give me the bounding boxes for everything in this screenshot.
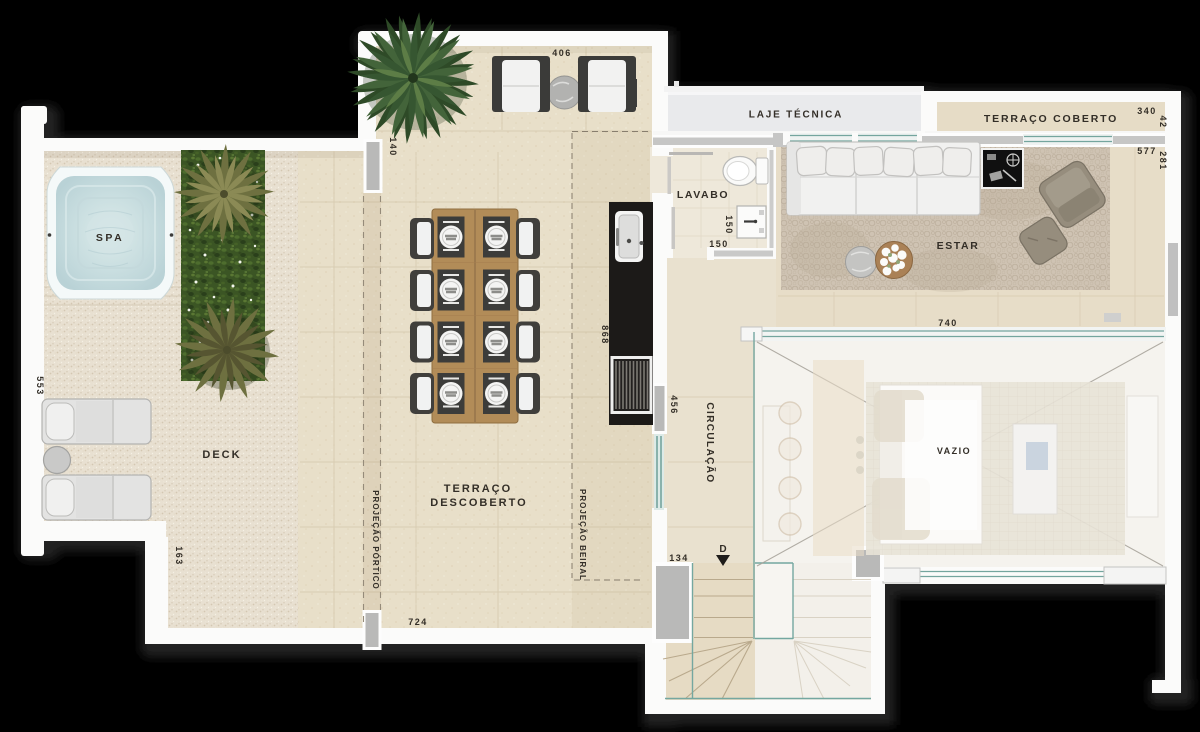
svg-text:LAVABO: LAVABO [677, 189, 729, 201]
svg-text:553: 553 [35, 376, 45, 396]
svg-text:868: 868 [600, 325, 610, 345]
svg-text:456: 456 [669, 395, 679, 415]
svg-text:TERRAÇO COBERTO: TERRAÇO COBERTO [984, 113, 1118, 125]
svg-text:VAZIO: VAZIO [937, 446, 971, 456]
svg-text:PROJEÇÃO BEIRAL: PROJEÇÃO BEIRAL [578, 489, 587, 581]
svg-text:163: 163 [174, 546, 184, 566]
svg-text:TERRAÇO: TERRAÇO [444, 483, 512, 495]
svg-text:LAJE TÉCNICA: LAJE TÉCNICA [749, 108, 843, 121]
svg-text:CIRCULAÇÃO: CIRCULAÇÃO [704, 402, 717, 483]
svg-text:42: 42 [1158, 115, 1168, 128]
svg-text:140: 140 [388, 137, 398, 157]
svg-text:281: 281 [1158, 151, 1168, 171]
svg-text:340: 340 [1137, 106, 1157, 116]
svg-text:DESCOBERTO: DESCOBERTO [430, 497, 527, 509]
svg-text:577: 577 [1137, 146, 1157, 156]
svg-text:DECK: DECK [202, 449, 241, 461]
svg-text:724: 724 [408, 617, 428, 627]
svg-text:150: 150 [724, 215, 734, 235]
svg-text:ESTAR: ESTAR [937, 240, 980, 252]
svg-text:PROJEÇÃO PÓRTICO: PROJEÇÃO PÓRTICO [371, 490, 380, 590]
svg-text:134: 134 [669, 553, 689, 563]
svg-text:406: 406 [552, 48, 572, 58]
svg-text:150: 150 [709, 239, 729, 249]
svg-text:SPA: SPA [96, 232, 124, 244]
svg-text:740: 740 [938, 318, 958, 328]
svg-text:D: D [719, 544, 726, 555]
